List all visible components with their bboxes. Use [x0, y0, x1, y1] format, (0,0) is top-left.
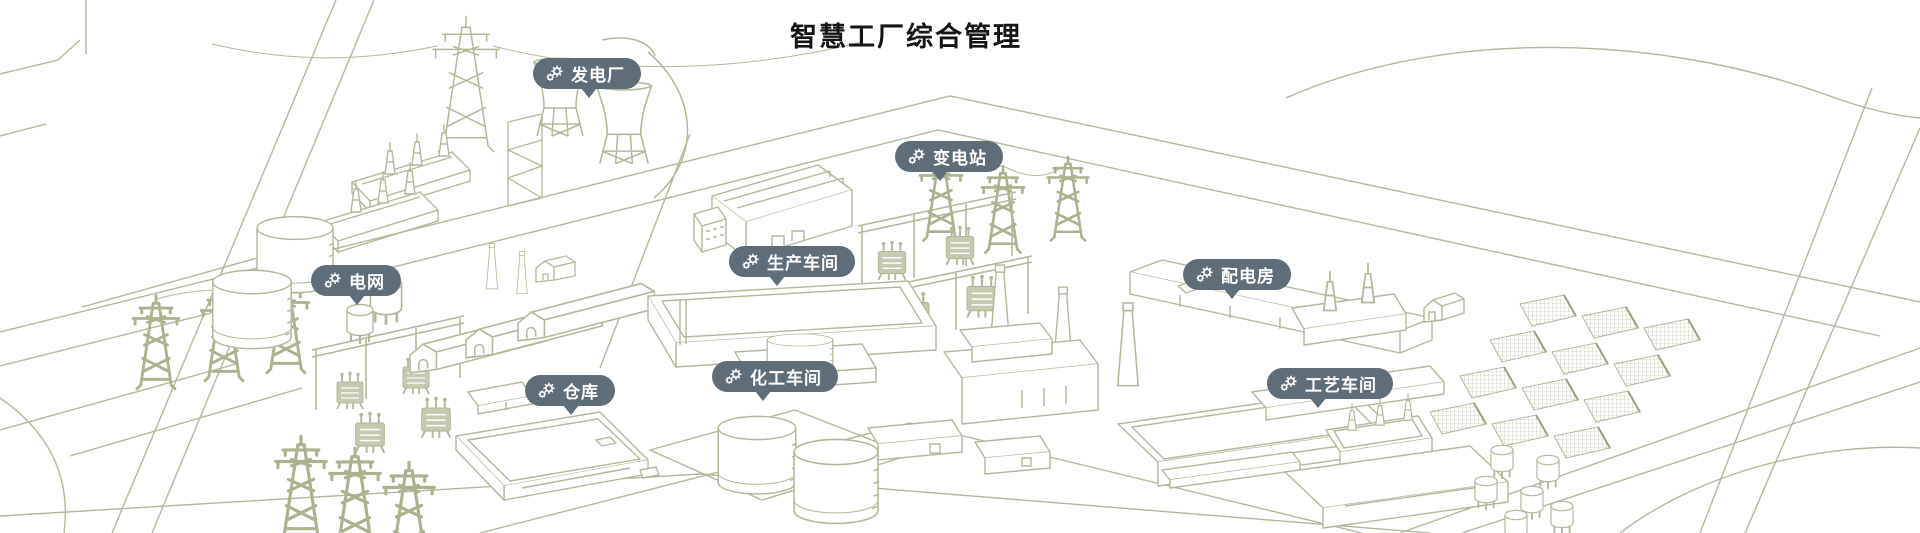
marker-process-workshop[interactable]: 工艺车间	[1267, 368, 1393, 399]
gears-icon	[537, 382, 556, 399]
marker-power-plant[interactable]: 发电厂	[533, 58, 641, 89]
small-chimneys	[486, 243, 575, 293]
marker-label: 工艺车间	[1305, 371, 1377, 396]
gears-icon	[907, 148, 926, 165]
marker-label: 生产车间	[767, 249, 839, 274]
transformer-platforms	[320, 125, 470, 252]
gears-icon	[741, 253, 760, 270]
marker-production-workshop[interactable]: 生产车间	[729, 246, 855, 277]
gears-icon	[724, 368, 743, 385]
gears-icon	[1195, 266, 1214, 283]
bushing-platform-right	[1292, 264, 1464, 345]
gears-icon	[1279, 375, 1298, 392]
marker-label: 仓库	[563, 378, 599, 403]
page-title: 智慧工厂综合管理	[790, 15, 1022, 54]
marker-label: 配电房	[1221, 262, 1275, 287]
marker-label: 变电站	[933, 144, 987, 169]
factory-map-illustration	[0, 0, 1920, 533]
smart-factory-dashboard: 智慧工厂综合管理 发电厂 变电站 电网 生产车间 配电房 仓库 化工车间 工艺车…	[0, 0, 1920, 533]
marker-power-grid[interactable]: 电网	[311, 265, 401, 296]
marker-warehouse[interactable]: 仓库	[525, 375, 615, 406]
marker-chemical-workshop[interactable]: 化工车间	[712, 361, 838, 392]
marker-substation[interactable]: 变电站	[895, 141, 1003, 172]
solar-panel-array	[1430, 295, 1700, 458]
marker-distribution-room[interactable]: 配电房	[1183, 259, 1291, 290]
marker-label: 化工车间	[750, 364, 822, 389]
tall-pylon	[433, 16, 499, 151]
small-vessels	[1475, 445, 1573, 533]
marker-label: 发电厂	[571, 61, 625, 86]
grid-substation-yard	[312, 316, 464, 453]
marker-label: 电网	[349, 268, 385, 293]
gears-icon	[545, 65, 564, 82]
gabled-warehouses	[410, 284, 654, 373]
sawtooth-factory	[694, 165, 852, 258]
gears-icon	[323, 272, 342, 289]
